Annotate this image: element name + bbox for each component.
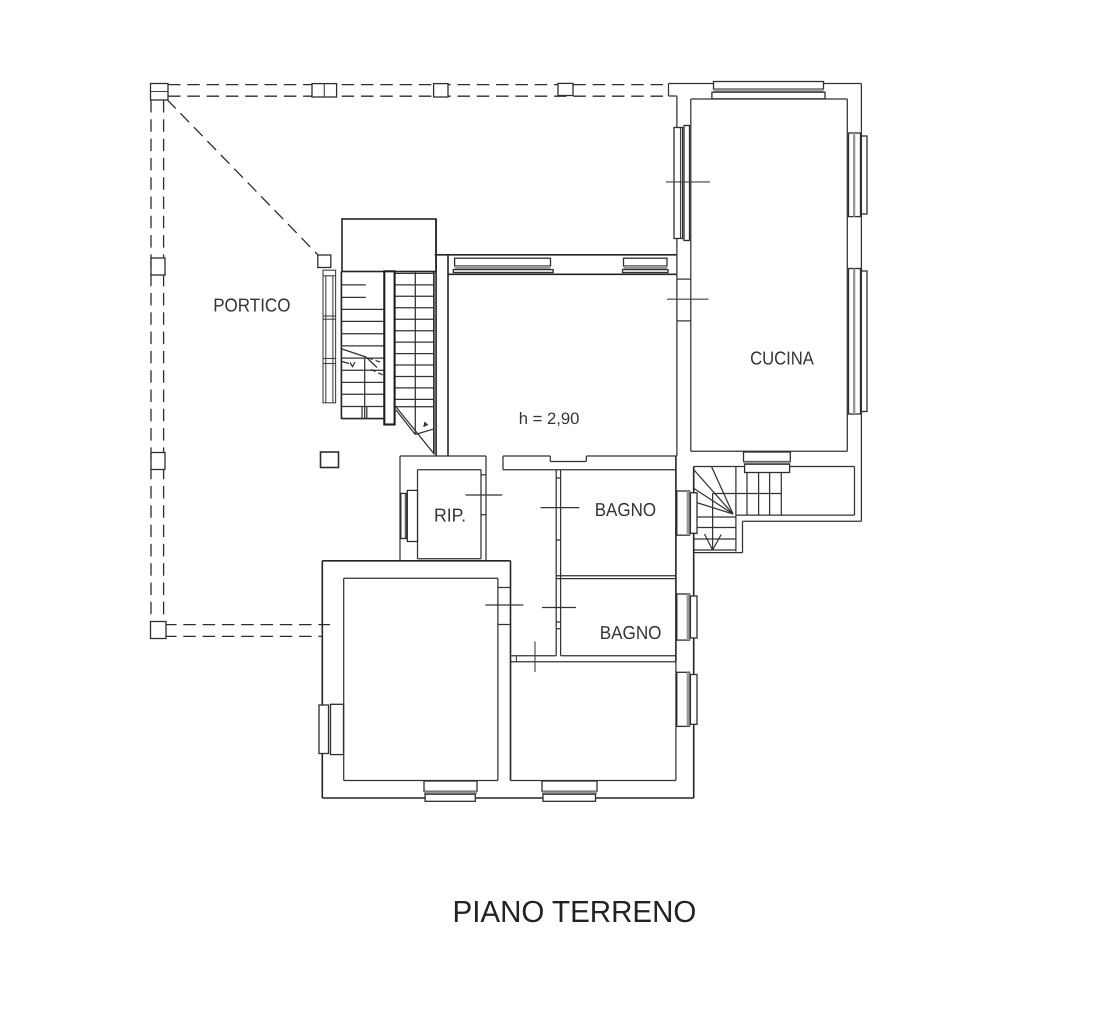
svg-text:PORTICO: PORTICO	[213, 294, 290, 315]
svg-text:h = 2,90: h = 2,90	[519, 410, 580, 428]
svg-text:CUCINA: CUCINA	[750, 348, 814, 369]
svg-text:RIP.: RIP.	[434, 505, 466, 526]
svg-text:BAGNO: BAGNO	[600, 622, 662, 643]
svg-text:BAGNO: BAGNO	[595, 499, 656, 520]
svg-text:PIANO TERRENO: PIANO TERRENO	[453, 895, 697, 929]
